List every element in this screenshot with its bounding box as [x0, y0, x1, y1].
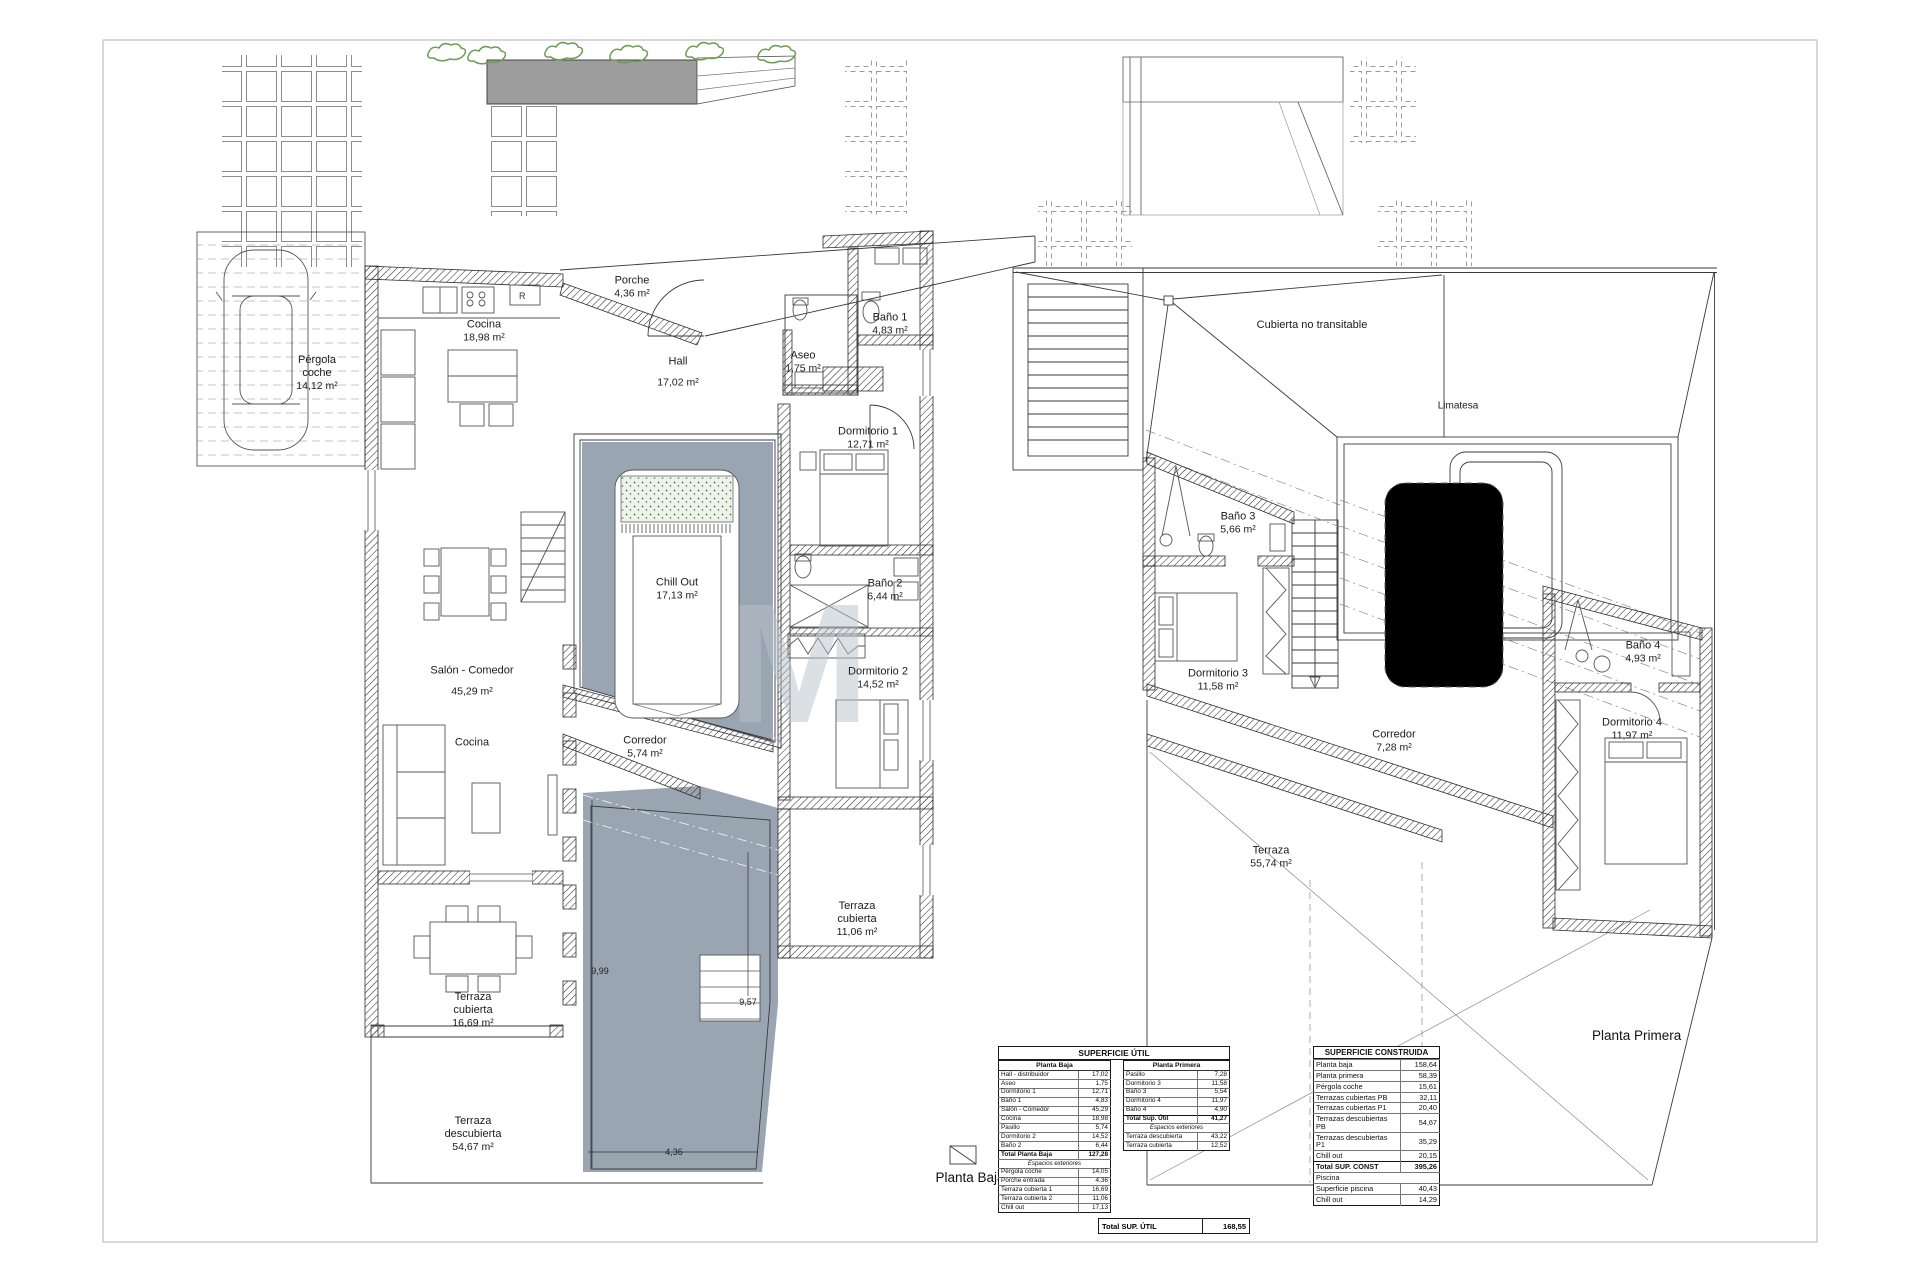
table-row: Dormitorio 311,58	[1124, 1079, 1230, 1088]
superficie-util-title: SUPERFICIE ÚTIL	[998, 1046, 1230, 1060]
table-row: Terrazas cubiertas PB32,11	[1314, 1092, 1440, 1103]
table-row: Chill out17,13	[999, 1204, 1111, 1213]
table-row: Terraza cubierta 116,69	[999, 1186, 1111, 1195]
roof-label: Cubierta no transitable	[1257, 319, 1368, 331]
table-row: Pérgola coche15,61	[1314, 1081, 1440, 1092]
total-sup-util-box: Total SUP. ÚTIL 168,55	[1098, 1218, 1250, 1234]
room-label-salon: Salón - Comedor 45,29 m²	[407, 664, 537, 697]
room-label-dorm4: Dormitorio 4 11,97 m²	[1582, 716, 1682, 741]
table-row: Porche entrada4,36	[999, 1177, 1111, 1186]
table-row: Total Planta Baja127,28	[999, 1151, 1111, 1160]
superficie-util-table: SUPERFICIE ÚTIL Planta Baja Hall - distr…	[998, 1046, 1230, 1213]
piscina-table: PiscinaSuperficie piscina40,43Chill out1…	[1313, 1172, 1440, 1206]
table-row: Aseo1,75	[999, 1079, 1111, 1088]
north-symbol	[950, 1146, 976, 1164]
room-label-terraza-primera: Terraza 55,74 m²	[1231, 844, 1311, 869]
table-row: Terraza descubierta43,22	[1124, 1133, 1230, 1142]
room-label-banio3: Baño 3 5,66 m²	[1203, 510, 1273, 535]
table-subheader-row: Piscina	[1314, 1173, 1440, 1184]
room-label-corredor-primera: Corredor 7,28 m²	[1349, 728, 1439, 753]
table-row: Terraza cubierta 211,06	[999, 1195, 1111, 1204]
total-sup-util-value: 168,55	[1202, 1219, 1249, 1233]
table-row: Chill out20,15	[1314, 1151, 1440, 1162]
table-row: Planta baja158,64	[1314, 1060, 1440, 1071]
table-subheader-row: Espacios exteriores	[1124, 1124, 1230, 1133]
room-label-banio1: Baño 1 4,83 m²	[855, 311, 925, 336]
util-baja-header: Planta Baja	[999, 1061, 1111, 1071]
room-label-aseo: Aseo 1,75 m²	[775, 349, 831, 374]
room-label-pergola: Pérgola coche 14,12 m²	[285, 354, 349, 392]
pool-dim-width: 4,36	[665, 1147, 683, 1157]
room-label-cocina2: Cocina	[432, 737, 512, 750]
car-pergola	[197, 232, 365, 466]
table-row: Baño 44,90	[1124, 1106, 1230, 1115]
watermark-logo: M I N	[728, 569, 870, 759]
table-row: Dormitorio 214,52	[999, 1133, 1111, 1142]
kitchen-appliance-label: R	[519, 291, 526, 301]
table-row: Hall - distribuidor17,02	[999, 1071, 1111, 1080]
table-row: Terraza cubierta12,52	[1124, 1141, 1230, 1150]
room-label-terraza-descubierta: Terraza descubierta 54,67 m²	[426, 1115, 521, 1153]
table-row: Total Sup. Útil41,27	[1124, 1115, 1230, 1124]
table-row: Dormitorio 112,71	[999, 1088, 1111, 1097]
table-row: Planta primera58,39	[1314, 1070, 1440, 1081]
table-row: Total SUP. CONST395,26	[1314, 1162, 1440, 1173]
room-label-terraza-cubierta-2: Terraza cubierta 11,06 m²	[822, 900, 892, 938]
plan-title-primera: Planta Primera	[1592, 1028, 1681, 1043]
table-row: Pérgola coche14,05	[999, 1168, 1111, 1177]
room-label-chillout: Chill Out 17,13 m²	[632, 576, 722, 601]
table-row: Baño 26,44	[999, 1142, 1111, 1151]
table-row: Terrazas descubiertas P135,29	[1314, 1132, 1440, 1151]
room-label-banio4: Baño 4 4,93 m²	[1608, 639, 1678, 664]
pool-dim-inner: 9,57	[739, 997, 757, 1007]
table-row: Superficie piscina40,43	[1314, 1183, 1440, 1194]
room-label-dorm3: Dormitorio 3 11,58 m²	[1168, 667, 1268, 692]
util-primera-header: Planta Primera	[1124, 1061, 1230, 1071]
table-row: Pasillo7,28	[1124, 1071, 1230, 1080]
table-subheader-row: Espacios exteriores	[999, 1160, 1111, 1169]
total-sup-util-label: Total SUP. ÚTIL	[1099, 1219, 1202, 1233]
table-row: Pasillo5,74	[999, 1124, 1111, 1133]
table-row: Terrazas cubiertas P120,40	[1314, 1103, 1440, 1114]
room-label-terraza-cubierta-1: Terraza cubierta 16,69 m²	[438, 991, 508, 1029]
util-planta-baja-table: Planta Baja Hall - distribuidor17,02Aseo…	[998, 1060, 1111, 1213]
util-planta-primera-table: Planta Primera Pasillo7,28Dormitorio 311…	[1123, 1060, 1230, 1151]
room-label-corredor-baja: Corredor 5,74 m²	[600, 734, 690, 759]
table-row: Salón - Comedor45,29	[999, 1106, 1111, 1115]
room-label-cocina: Cocina 18,98 m²	[439, 318, 529, 343]
table-row: Dormitorio 411,97	[1124, 1097, 1230, 1106]
table-row: Terrazas descubiertas PB54,67	[1314, 1114, 1440, 1133]
superficie-construida-table: SUPERFICIE CONSTRUIDA Planta baja158,64P…	[1313, 1046, 1440, 1173]
room-label-hall: Hall 17,02 m²	[633, 355, 723, 388]
room-label-porche: Porche 4,36 m²	[587, 274, 677, 299]
room-label-dorm2: Dormitorio 2 14,52 m²	[828, 665, 928, 690]
table-row: Chill out14,29	[1314, 1194, 1440, 1205]
watermark-sub: I N	[742, 731, 791, 748]
table-row: Cocina18,98	[999, 1115, 1111, 1124]
table-row: Baño 35,54	[1124, 1088, 1230, 1097]
ridge-label: Limatesa	[1438, 401, 1479, 412]
pool-dim-length: 9,99	[591, 966, 609, 976]
superficie-construida-title: SUPERFICIE CONSTRUIDA	[1313, 1046, 1440, 1059]
room-label-banio2: Baño 2 6,44 m²	[850, 577, 920, 602]
table-row: Baño 14,83	[999, 1097, 1111, 1106]
room-label-dorm1: Dormitorio 1 12,71 m²	[818, 425, 918, 450]
